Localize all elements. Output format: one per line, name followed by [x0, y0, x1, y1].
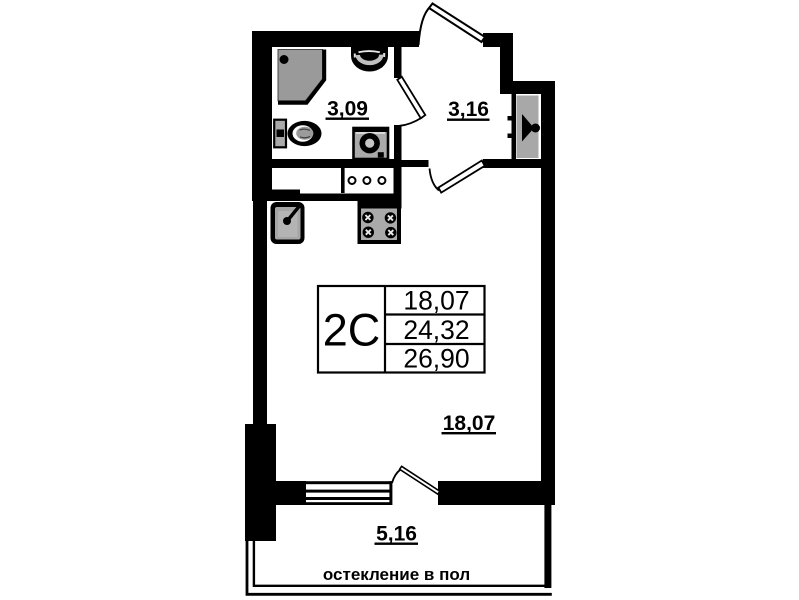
- svg-text:3,16: 3,16: [448, 98, 489, 121]
- svg-text:2C: 2C: [323, 304, 381, 355]
- svg-text:18,07: 18,07: [443, 412, 496, 435]
- svg-text:18,07: 18,07: [403, 286, 469, 316]
- svg-text:3,09: 3,09: [327, 98, 368, 121]
- svg-text:остекление в пол: остекление в пол: [323, 565, 470, 584]
- svg-text:5,16: 5,16: [376, 523, 417, 546]
- svg-text:24,32: 24,32: [403, 315, 469, 345]
- svg-text:26,90: 26,90: [403, 344, 469, 374]
